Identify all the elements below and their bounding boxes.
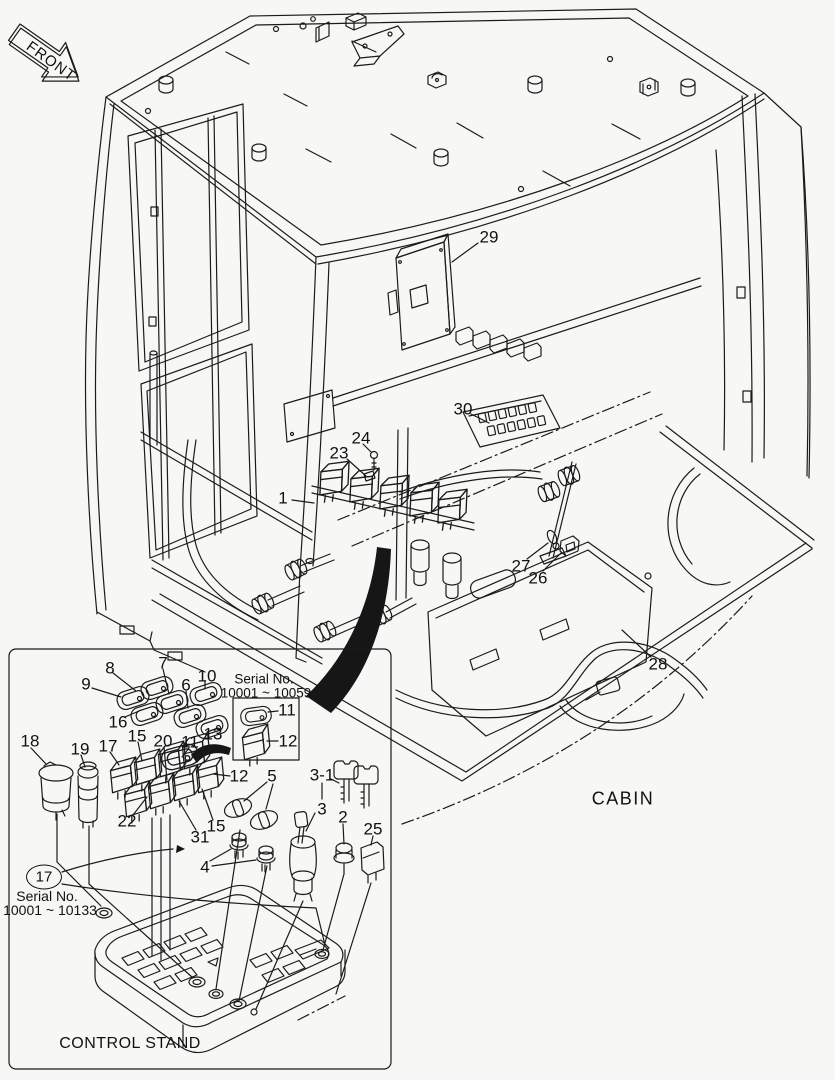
roof-brackets: [300, 13, 658, 96]
part-5-knobs: [222, 795, 280, 833]
cabin-left-wall: [85, 97, 322, 672]
fuse-box-30: [463, 395, 560, 447]
control-stand-body: [95, 885, 345, 1052]
stand-wires: [57, 814, 371, 1009]
part-3-1-keys: [334, 761, 378, 808]
front-left-pillar: [296, 257, 329, 662]
part-2-button: [334, 843, 354, 874]
part-18-lighter: [39, 762, 73, 820]
part-25-switch: [361, 842, 384, 883]
parts-diagram-art: [0, 0, 835, 1080]
cabin-roof: [106, 9, 764, 264]
part-3-ignition: [290, 811, 317, 901]
cabin-right-wall: [660, 93, 814, 585]
harness-28: [396, 596, 752, 824]
part-19-button: [78, 762, 98, 828]
controller-box-29: [388, 234, 455, 350]
front-arrow: [0, 15, 92, 98]
cabin-floor: [152, 278, 812, 781]
inset-cap-cluster: [115, 674, 230, 740]
main-leader-lines: [292, 243, 651, 657]
parts-diagram-page: FRONT CABIN Serial No. 10001 ~ 10059 17 …: [0, 0, 835, 1080]
inset-serial-subbox: [233, 698, 299, 766]
